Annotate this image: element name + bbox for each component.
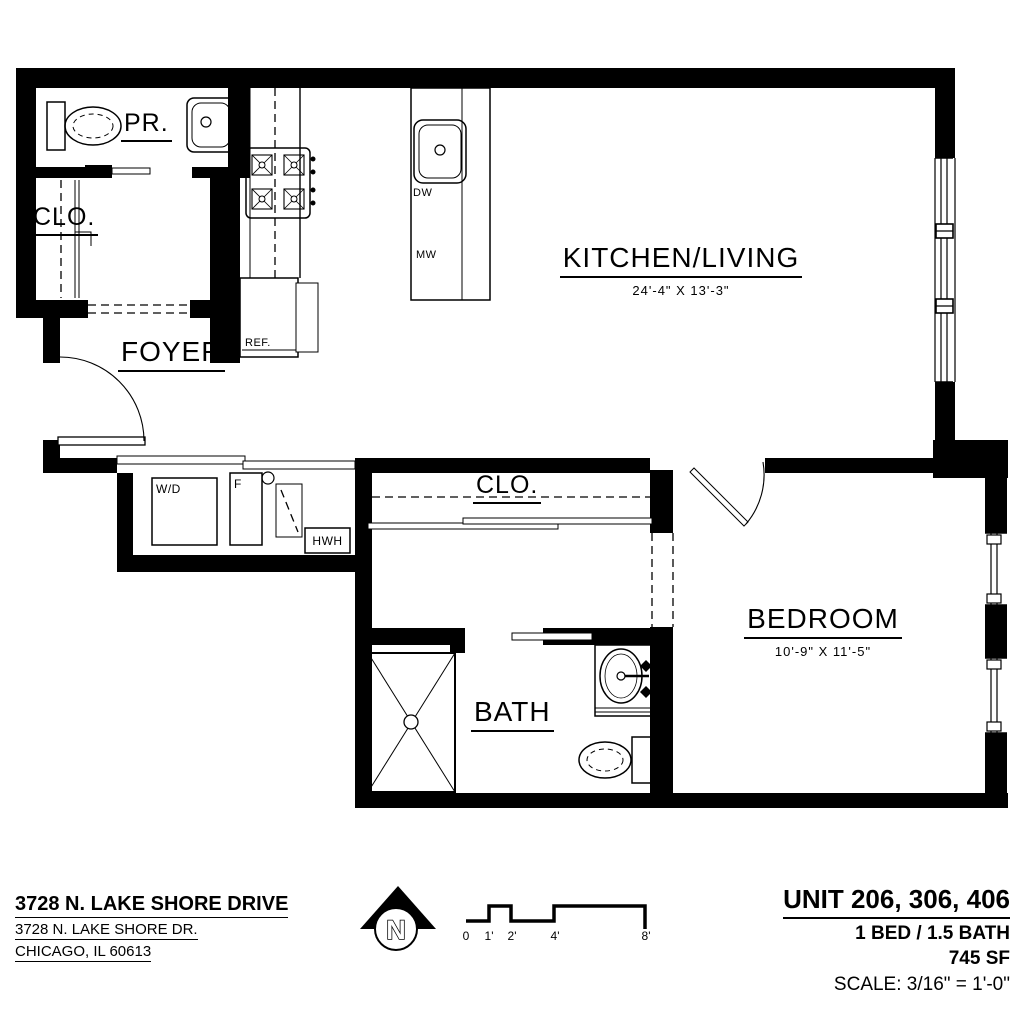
floorplan-drawing: N (0, 0, 1024, 1024)
address-street: 3728 N. LAKE SHORE DR. (15, 921, 288, 940)
scale-bar (466, 906, 645, 929)
washer-dryer-label: W/D (156, 482, 181, 496)
wall-segment (935, 382, 955, 442)
powder-room-label: PR. (121, 109, 172, 142)
refrigerator-label: REF. (245, 337, 271, 349)
hall-closet-sliding-doors (368, 518, 652, 529)
scale-tick-4: 8' (642, 929, 651, 943)
scale-tick-1: 1' (485, 929, 494, 943)
upper-closet-label: CLO. (30, 203, 98, 236)
wall-segment (117, 555, 372, 572)
scale-tick-2: 2' (508, 929, 517, 943)
wall-segment (650, 470, 673, 533)
furnace-label: F (234, 477, 242, 491)
scale-tick-3: 4' (551, 929, 560, 943)
bath-toilet (579, 737, 653, 783)
powder-sink (187, 98, 235, 152)
address-city: CHICAGO, IL 60613 (15, 943, 288, 962)
wall-segment (985, 605, 1007, 658)
laundry-closet-doors (117, 456, 355, 469)
powder-toilet (47, 102, 121, 150)
wall-segment (355, 793, 1008, 808)
wall-segment (985, 733, 1007, 793)
shower (368, 653, 455, 792)
scale-tick-0: 0 (463, 929, 470, 943)
north-arrow: N (360, 886, 436, 950)
bath-sink (595, 645, 652, 716)
wall-segment (935, 88, 955, 158)
bath-pocket-door (512, 633, 592, 640)
kitchen-living-label: KITCHEN/LIVING 24'-4" X 13'-3" (540, 242, 822, 298)
wall-segment (933, 440, 1008, 478)
wall-segment (355, 458, 372, 808)
kitchen-window (935, 158, 955, 382)
unit-config: 1 BED / 1.5 BATH (783, 923, 1010, 945)
unit-title: UNIT 206, 306, 406 (783, 884, 1010, 919)
dishwasher-label: DW (413, 187, 432, 199)
wall-segment (85, 165, 112, 178)
floorplan-page: N PR. CLO. FOYER KITCHEN/LIVING 24'-4" X… (0, 0, 1024, 1024)
wall-segment (36, 167, 85, 178)
bedroom-dimensions: 10'-9" X 11'-5" (713, 644, 933, 659)
address-title: 3728 N. LAKE SHORE DRIVE (15, 893, 288, 918)
address-block: 3728 N. LAKE SHORE DRIVE 3728 N. LAKE SH… (15, 893, 288, 962)
bedroom-label: BEDROOM 10'-9" X 11'-5" (713, 603, 933, 659)
wall-segment (765, 458, 935, 473)
bedroom-door (690, 462, 764, 526)
hall-closet-label: CLO. (473, 471, 541, 504)
wall-segment (985, 478, 1007, 533)
wall-segment (192, 167, 228, 178)
wall-segment (16, 68, 955, 88)
unit-info-block: UNIT 206, 306, 406 1 BED / 1.5 BATH 745 … (783, 884, 1010, 996)
bath-label: BATH (471, 696, 554, 732)
wall-segment (43, 458, 117, 473)
scale-note: SCALE: 3/16" = 1'-0" (783, 974, 1010, 996)
closet-shelf-lines (75, 180, 91, 298)
unit-area: 745 SF (783, 948, 1010, 970)
water-heater-label: HWH (305, 534, 350, 548)
kitchen-living-dimensions: 24'-4" X 13'-3" (540, 283, 822, 298)
foyer-label: FOYER (118, 336, 225, 372)
powder-room-pocket-door (112, 168, 150, 174)
wall-segment (43, 315, 60, 363)
stove (246, 148, 316, 218)
microwave-label: MW (416, 249, 437, 261)
wall-segment (450, 645, 465, 653)
north-arrow-letter: N (386, 915, 406, 945)
wall-segment (372, 628, 465, 645)
stove-knobs (311, 157, 316, 206)
